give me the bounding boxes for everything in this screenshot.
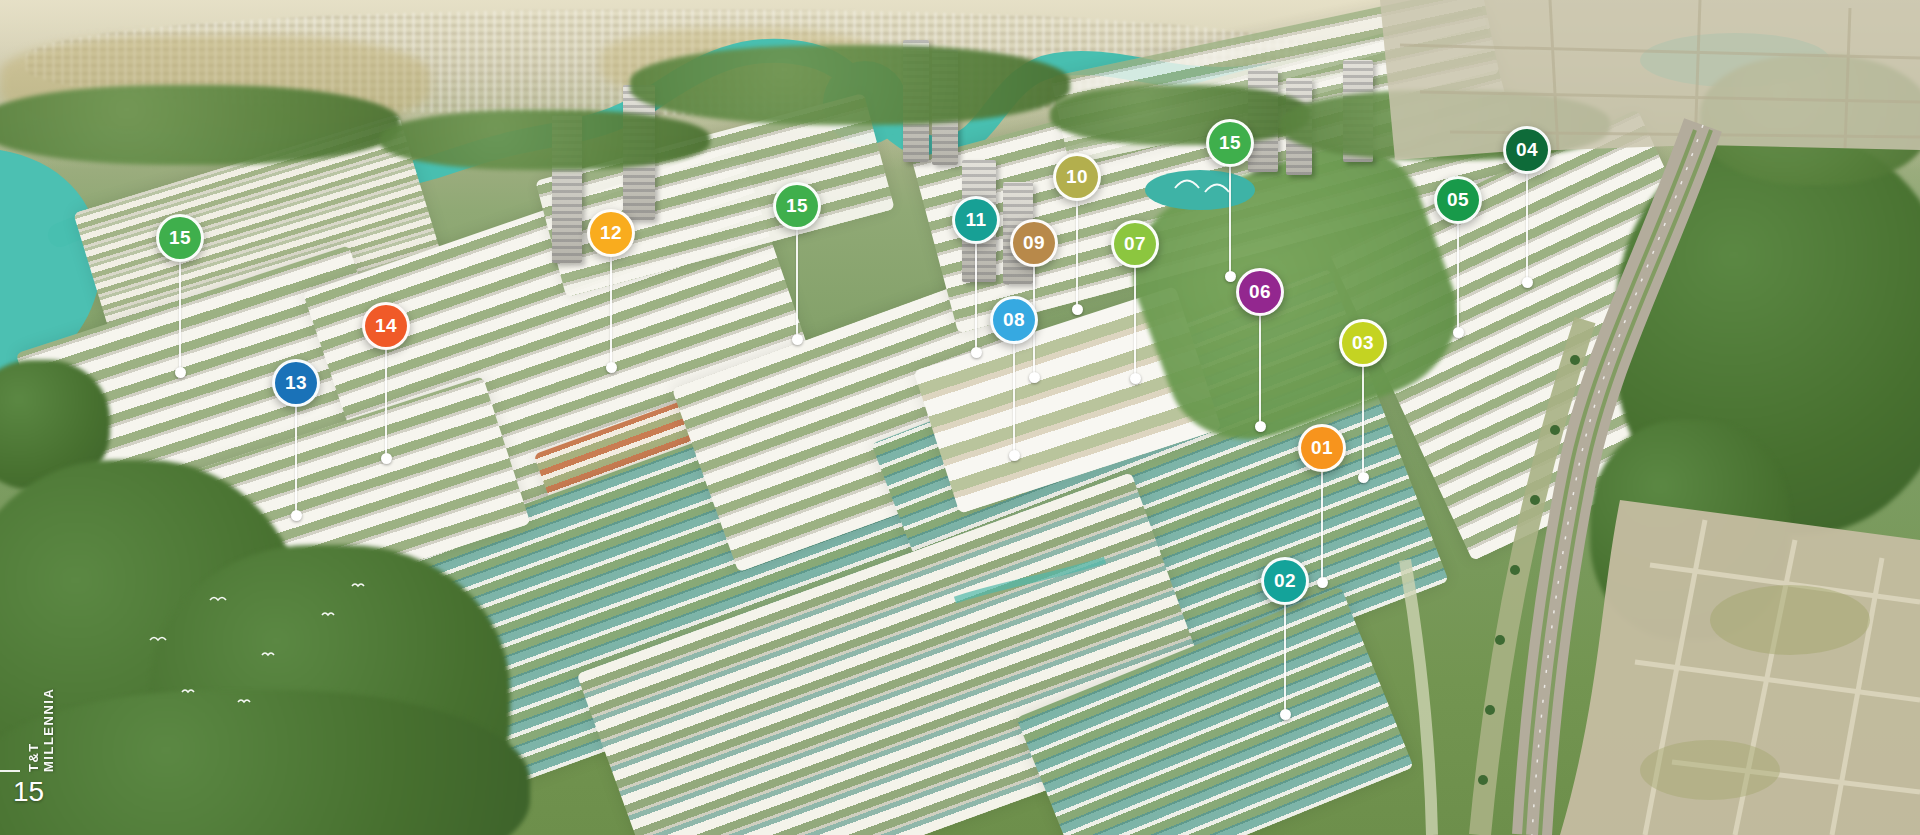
marker-pin[interactable]: 05: [1434, 176, 1482, 224]
marker-leader-line: [1526, 174, 1528, 283]
marker-leader-line: [1229, 167, 1231, 277]
marker-endpoint-dot: [1072, 304, 1083, 315]
marker-label: 13: [285, 372, 307, 394]
marker-label: 04: [1516, 139, 1538, 161]
marker-label: 15: [786, 195, 808, 217]
marker-leader-line: [1259, 316, 1261, 427]
tree-band: [630, 45, 1070, 125]
marker-endpoint-dot: [1522, 277, 1533, 288]
marker-label: 02: [1274, 570, 1296, 592]
forest-east-upper: [1700, 55, 1920, 185]
marker-endpoint-dot: [175, 367, 186, 378]
edge-road: [1405, 560, 1432, 835]
marker-leader-line: [295, 407, 297, 516]
tree-band: [1280, 90, 1610, 160]
marker-endpoint-dot: [1029, 372, 1040, 383]
marker-pin[interactable]: 06: [1236, 268, 1284, 316]
marker-label: 12: [600, 222, 622, 244]
marker-leader-line: [1076, 201, 1078, 310]
marker-pin[interactable]: 13: [272, 359, 320, 407]
tree-band: [0, 85, 400, 165]
marker-leader-line: [1457, 224, 1459, 333]
page-number-divider: [0, 770, 20, 772]
marker-label: 06: [1249, 281, 1271, 303]
marker-pin[interactable]: 15: [1206, 119, 1254, 167]
marker-leader-line: [1362, 367, 1364, 478]
marker-endpoint-dot: [1255, 421, 1266, 432]
marker-endpoint-dot: [291, 510, 302, 521]
marker-pin[interactable]: 02: [1261, 557, 1309, 605]
marker-leader-line: [1321, 472, 1323, 583]
forest-east-lower: [1590, 420, 1790, 640]
marker-label: 10: [1066, 166, 1088, 188]
marker-label: 08: [1003, 309, 1025, 331]
marker-endpoint-dot: [971, 347, 982, 358]
marker-leader-line: [385, 350, 387, 459]
masterplan-aerial-view: 15 14 13 12 15 11 10 09 08: [0, 0, 1920, 835]
marker-endpoint-dot: [1009, 450, 1020, 461]
marker-endpoint-dot: [792, 334, 803, 345]
marker-pin[interactable]: 10: [1053, 153, 1101, 201]
marker-pin[interactable]: 01: [1298, 424, 1346, 472]
tree-band: [380, 110, 710, 170]
marker-pin[interactable]: 07: [1111, 220, 1159, 268]
marker-endpoint-dot: [606, 362, 617, 373]
marker-leader-line: [610, 257, 612, 368]
tree-band: [1050, 85, 1310, 145]
marker-label: 01: [1311, 437, 1333, 459]
marker-leader-line: [975, 244, 977, 353]
marker-pin[interactable]: 04: [1503, 126, 1551, 174]
marker-label: 15: [1219, 132, 1241, 154]
marker-label: 05: [1447, 189, 1469, 211]
marker-endpoint-dot: [1130, 373, 1141, 384]
marker-label: 15: [169, 227, 191, 249]
marker-leader-line: [1284, 605, 1286, 715]
marker-pin[interactable]: 15: [773, 182, 821, 230]
marker-leader-line: [179, 262, 181, 373]
marker-endpoint-dot: [1280, 709, 1291, 720]
marker-endpoint-dot: [1358, 472, 1369, 483]
marker-label: 07: [1124, 233, 1146, 255]
marker-label: 03: [1352, 332, 1374, 354]
marker-pin[interactable]: 11: [952, 196, 1000, 244]
marker-pin[interactable]: 15: [156, 214, 204, 262]
marker-pin[interactable]: 08: [990, 296, 1038, 344]
marker-pin[interactable]: 09: [1010, 219, 1058, 267]
marker-pin[interactable]: 12: [587, 209, 635, 257]
marker-leader-line: [1013, 344, 1015, 456]
marker-endpoint-dot: [1317, 577, 1328, 588]
marker-endpoint-dot: [381, 453, 392, 464]
marker-leader-line: [1134, 268, 1136, 379]
marker-leader-line: [796, 230, 798, 340]
marker-label: 14: [375, 315, 397, 337]
marker-label: 09: [1023, 232, 1045, 254]
marker-label: 11: [965, 209, 986, 231]
grass-patch: [1640, 740, 1780, 800]
marker-pin[interactable]: 03: [1339, 319, 1387, 367]
page-number: 15: [13, 776, 44, 808]
marker-endpoint-dot: [1225, 271, 1236, 282]
brand-vertical-text: T&T MILLENNIA: [26, 660, 56, 772]
marker-pin[interactable]: 14: [362, 302, 410, 350]
marker-endpoint-dot: [1453, 327, 1464, 338]
